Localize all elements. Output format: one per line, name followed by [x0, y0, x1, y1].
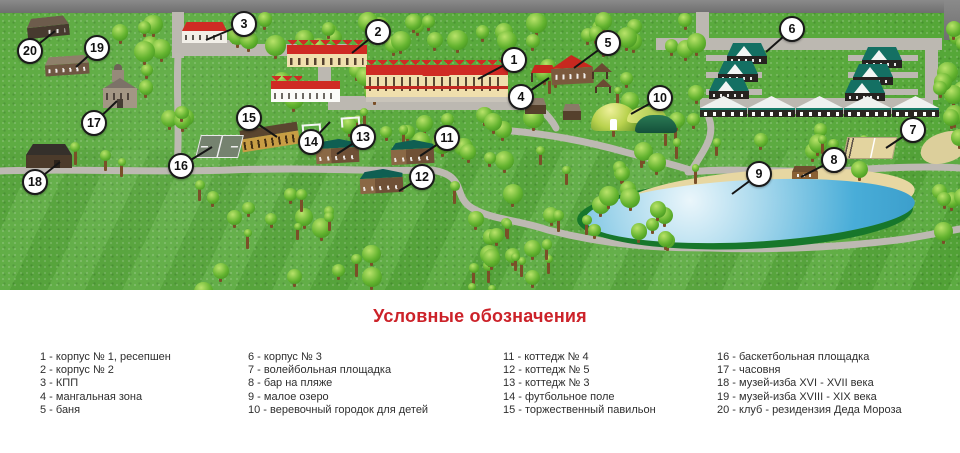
legend-item: 5 - баня: [40, 404, 171, 417]
map-marker-11: 11: [434, 125, 460, 151]
map-marker-17: 17: [81, 110, 107, 136]
legend-item: 2 - корпус № 2: [40, 364, 171, 377]
legend-item: 11 - коттедж № 4: [503, 351, 656, 364]
resort-map: 1234567891011121314151617181920: [0, 0, 960, 290]
map-marker-7: 7: [900, 117, 926, 143]
legend-item: 12 - коттедж № 5: [503, 364, 656, 377]
resort-map-page: 1234567891011121314151617181920 Условные…: [0, 0, 960, 453]
map-marker-5: 5: [595, 30, 621, 56]
legend-item: 15 - торжественный павильон: [503, 404, 656, 417]
legend-item: 3 - КПП: [40, 377, 171, 390]
map-marker-12: 12: [409, 164, 435, 190]
legend-item: 6 - корпус № 3: [248, 351, 428, 364]
legend-item: 16 - баскетбольная площадка: [717, 351, 902, 364]
legend-item: 20 - клуб - резидензия Деда Мороза: [717, 404, 902, 417]
map-marker-16: 16: [168, 153, 194, 179]
map-marker-2: 2: [365, 19, 391, 45]
marker-leader-lines: [0, 0, 960, 290]
map-marker-8: 8: [821, 147, 847, 173]
map-marker-19: 19: [84, 35, 110, 61]
legend-item: 18 - музей-изба XVI - XVII века: [717, 377, 902, 390]
map-marker-3: 3: [231, 11, 257, 37]
legend-title: Условные обозначения: [0, 306, 960, 327]
map-marker-14: 14: [298, 129, 324, 155]
legend-item: 13 - коттедж № 3: [503, 377, 656, 390]
map-marker-9: 9: [746, 161, 772, 187]
map-marker-18: 18: [22, 169, 48, 195]
map-marker-20: 20: [17, 38, 43, 64]
map-marker-4: 4: [508, 84, 534, 110]
legend-column-3: 11 - коттедж № 412 - коттедж № 513 - кот…: [503, 351, 656, 417]
legend-item: 19 - музей-изба XVIII - XIX века: [717, 391, 902, 404]
legend-item: 17 - часовня: [717, 364, 902, 377]
map-marker-10: 10: [647, 85, 673, 111]
legend-column-4: 16 - баскетбольная площадка17 - часовня1…: [717, 351, 902, 417]
legend-item: 7 - волейбольная площадка: [248, 364, 428, 377]
legend-column-1: 1 - корпус № 1, ресепшен2 - корпус № 23 …: [40, 351, 171, 417]
map-marker-13: 13: [350, 124, 376, 150]
legend-item: 9 - малое озеро: [248, 391, 428, 404]
legend-item: 4 - мангальная зона: [40, 391, 171, 404]
map-marker-6: 6: [779, 16, 805, 42]
legend-item: 1 - корпус № 1, ресепшен: [40, 351, 171, 364]
legend-item: 10 - веревочный городок для детей: [248, 404, 428, 417]
legend-item: 8 - бар на пляже: [248, 377, 428, 390]
legend-item: 14 - футбольное поле: [503, 391, 656, 404]
legend-column-2: 6 - корпус № 37 - волейбольная площадка8…: [248, 351, 428, 417]
map-marker-15: 15: [236, 105, 262, 131]
map-marker-1: 1: [501, 47, 527, 73]
